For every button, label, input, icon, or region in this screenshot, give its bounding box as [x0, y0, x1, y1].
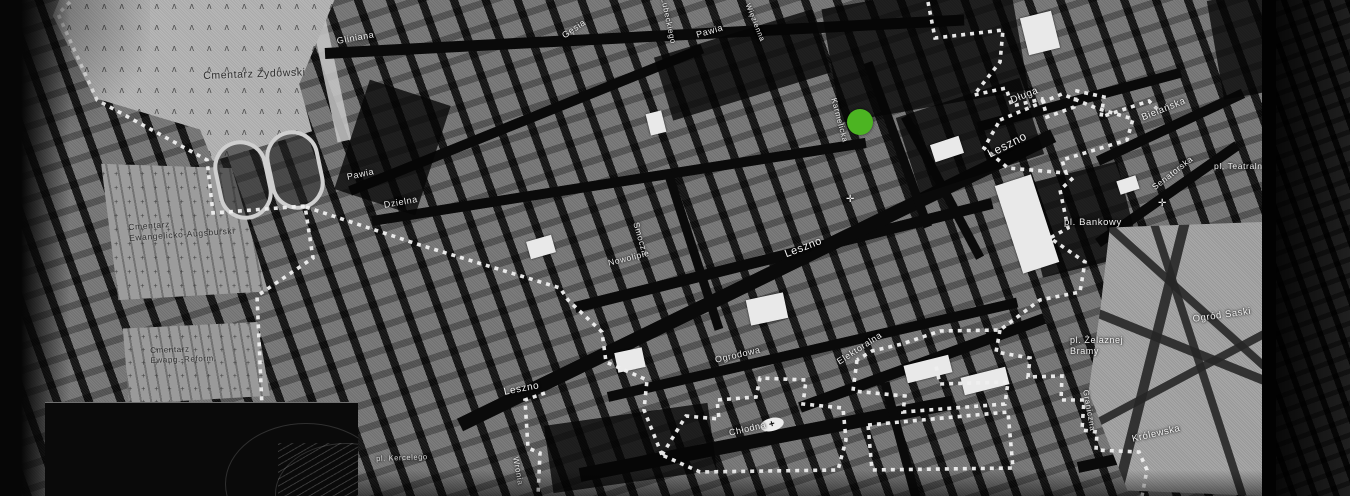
bottom-shade — [356, 470, 1266, 496]
park-path — [1146, 222, 1252, 496]
cross-icon: ✛ — [846, 194, 854, 205]
right-panel-shade — [1276, 0, 1350, 496]
adjacent-map-sheet — [1276, 0, 1350, 496]
inset-panel — [45, 402, 358, 496]
reformed-cemetery-area: ++++++++++++++++++++++++++++++++++++++++… — [110, 322, 270, 404]
cemetery-pattern: ++++++++++++++++++++++++++++++++++++++++… — [110, 322, 270, 404]
map-sheet-divider — [1262, 0, 1276, 496]
cross-icon: ✛ — [1158, 198, 1166, 209]
map-stage[interactable]: ᴧᴧᴧᴧᴧᴧᴧᴧᴧᴧᴧᴧᴧᴧᴧᴧᴧᴧᴧᴧᴧᴧᴧᴧᴧᴧᴧᴧᴧᴧᴧᴧᴧᴧᴧᴧᴧᴧᴧᴧ… — [0, 0, 1350, 496]
inset-sketch — [278, 443, 358, 496]
map-marker[interactable] — [847, 109, 873, 135]
